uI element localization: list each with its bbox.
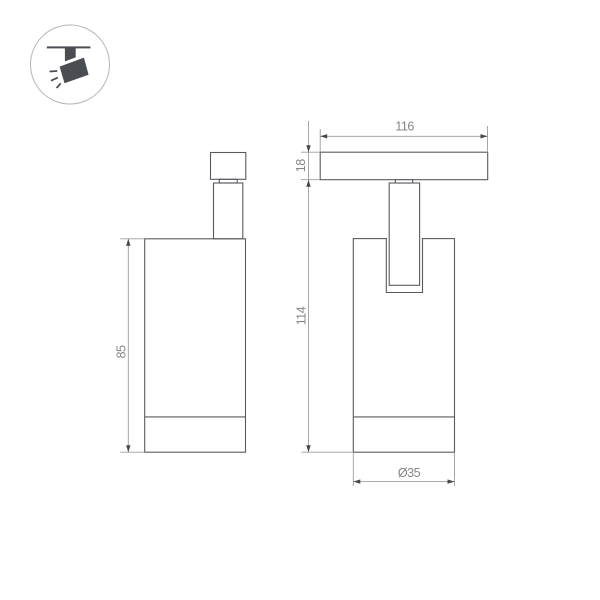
svg-text:18: 18 (294, 159, 308, 173)
svg-text:114: 114 (295, 306, 309, 325)
svg-text:85: 85 (114, 345, 128, 359)
svg-text:Ø35: Ø35 (398, 466, 421, 480)
svg-text:116: 116 (395, 120, 414, 134)
